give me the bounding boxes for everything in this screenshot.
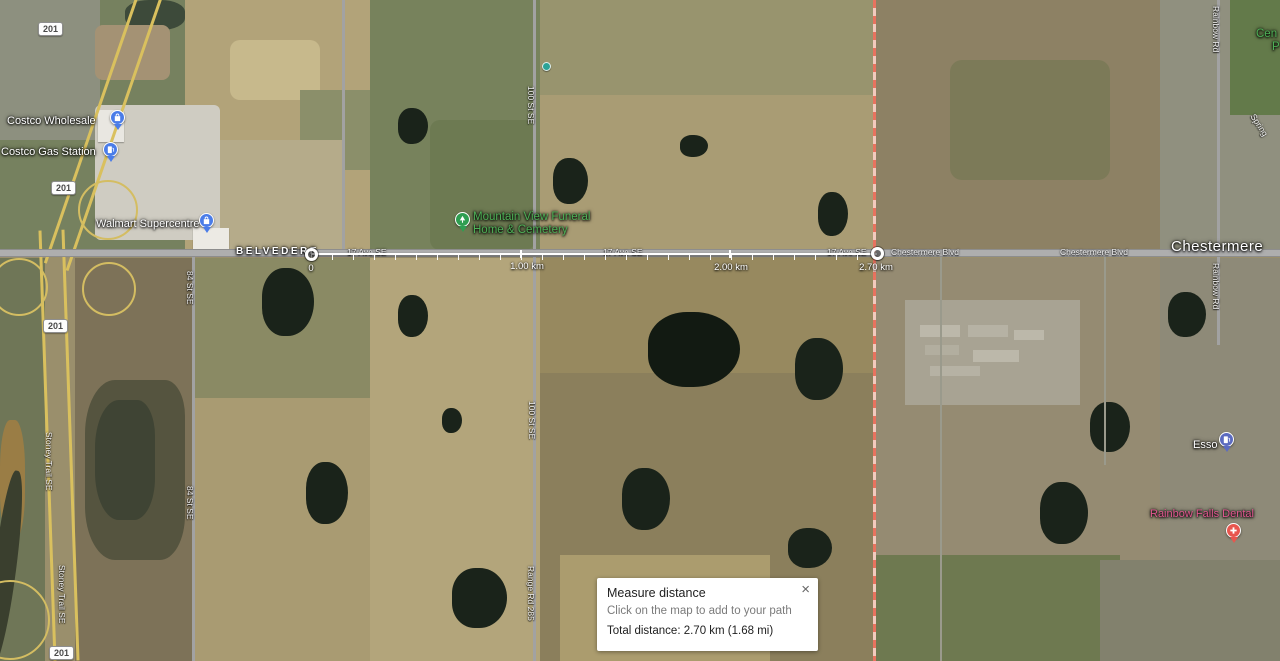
terrain-patch	[1230, 0, 1280, 115]
road-label-100st: 100 St SE	[527, 401, 537, 439]
park-label-line1: Cen	[1256, 28, 1277, 40]
close-icon[interactable]: ×	[801, 582, 810, 597]
waterbody	[795, 338, 843, 400]
road	[342, 0, 345, 255]
shopping-bag-icon	[202, 216, 211, 225]
waterbody	[1168, 292, 1206, 337]
park-label-cutoff: CenP	[1256, 28, 1280, 54]
fuel-pump-icon	[1222, 435, 1231, 444]
map-canvas[interactable]: 17 Ave SE 17 Ave SE 17 Ave SE Chestermer…	[0, 0, 1280, 661]
poi-label-esso[interactable]: Esso	[1193, 439, 1217, 451]
highway-shield-201: 201	[51, 181, 76, 195]
measure-start-point[interactable]	[305, 248, 318, 261]
road-label-100st: 100 St SE	[526, 86, 536, 124]
city-boundary-line	[873, 0, 876, 661]
dialog-instruction: Click on the map to add to your path	[607, 605, 808, 617]
waterbody	[648, 312, 740, 387]
dialog-title: Measure distance	[607, 586, 808, 600]
waterbody	[1090, 402, 1130, 452]
road	[1104, 255, 1106, 465]
ramp-loop	[82, 262, 136, 316]
funeral-home-line2: Home & Cemetery	[473, 224, 568, 236]
road-label-chestermere-blvd: Chestermere Blvd	[891, 247, 959, 257]
building	[1014, 330, 1044, 340]
funeral-home-pin[interactable]	[455, 212, 470, 227]
road-label-84st: 84 St SE	[185, 486, 195, 520]
poi-label-costco-gas[interactable]: Costco Gas Station	[1, 146, 96, 158]
walmart-pin[interactable]	[199, 213, 214, 228]
road-label-chestermere-blvd: Chestermere Blvd	[1060, 247, 1128, 257]
road	[940, 255, 942, 661]
road-label-rainbow-rd: Rainbow Rd	[1211, 263, 1221, 309]
road-label-stoney-trail: Stoney Trail SE	[57, 565, 67, 624]
waterbody	[442, 408, 462, 433]
poi-label-costco-wholesale[interactable]: Costco Wholesale	[7, 115, 96, 127]
waterbody	[398, 108, 428, 144]
tree-icon	[458, 215, 467, 224]
terrain-patch	[875, 555, 1120, 661]
highway-shield-201: 201	[38, 22, 63, 36]
waterbody	[818, 192, 848, 236]
costco-gas-pin[interactable]	[103, 142, 118, 157]
measure-end-point[interactable]	[871, 247, 884, 260]
ramp-loop	[78, 180, 138, 240]
waterbody	[1040, 482, 1088, 544]
dialog-total-distance: Total distance: 2.70 km (1.68 mi)	[607, 625, 808, 637]
building	[930, 366, 980, 376]
terrain-patch	[215, 140, 345, 250]
road-label-84st: 84 St SE	[185, 271, 195, 305]
highway-shield-201: 201	[49, 646, 74, 660]
esso-pin[interactable]	[1219, 432, 1234, 447]
measure-km-tick	[520, 250, 522, 258]
highway-shield-201: 201	[43, 319, 68, 333]
road	[192, 255, 195, 661]
waterbody	[788, 528, 832, 568]
road-label-range-rd: Range Rd 285	[526, 566, 536, 621]
road-label-stoney-trail: Stoney Trail SE	[44, 432, 54, 491]
poi-label-rainbow-falls-dental[interactable]: Rainbow Falls Dental	[1150, 508, 1254, 520]
dental-pin[interactable]	[1226, 523, 1241, 538]
measure-path-ticks	[311, 255, 877, 260]
funeral-home-line1: Mountain View Funeral	[473, 211, 590, 223]
waterbody	[452, 568, 507, 628]
park-label-line2: P	[1272, 41, 1280, 53]
shopping-bag-icon	[113, 113, 122, 122]
road-label-rainbow-rd: Rainbow Rd	[1211, 6, 1221, 52]
waterbody	[398, 295, 428, 337]
measure-label-total: 2.70 km	[859, 262, 893, 273]
building	[973, 350, 1019, 362]
poi-label-funeral-home[interactable]: Mountain View FuneralHome & Cemetery	[473, 211, 590, 237]
terrain-patch	[95, 400, 155, 520]
poi-label-walmart[interactable]: Walmart Supercentre	[96, 218, 200, 230]
building	[968, 325, 1008, 337]
waterbody	[680, 135, 708, 157]
measure-label-1km: 1.00 km	[510, 261, 544, 272]
city-label-chestermere[interactable]: Chestermere	[1171, 238, 1263, 255]
measure-label-start: 0	[308, 263, 313, 274]
waterbody	[262, 268, 314, 336]
waterbody	[622, 468, 670, 530]
terrain-patch	[540, 0, 875, 95]
terrain-patch	[950, 60, 1110, 180]
waterbody	[306, 462, 348, 524]
park-dot-icon[interactable]	[542, 62, 551, 71]
costco-wholesale-pin[interactable]	[110, 110, 125, 125]
terrain-patch	[1100, 560, 1280, 661]
fuel-pump-icon	[106, 145, 115, 154]
measure-label-2km: 2.00 km	[714, 262, 748, 273]
building	[925, 345, 959, 355]
waterbody	[553, 158, 588, 204]
measure-km-tick	[729, 250, 731, 258]
medical-cross-icon	[1229, 526, 1238, 535]
measure-distance-dialog: × Measure distance Click on the map to a…	[597, 578, 818, 651]
